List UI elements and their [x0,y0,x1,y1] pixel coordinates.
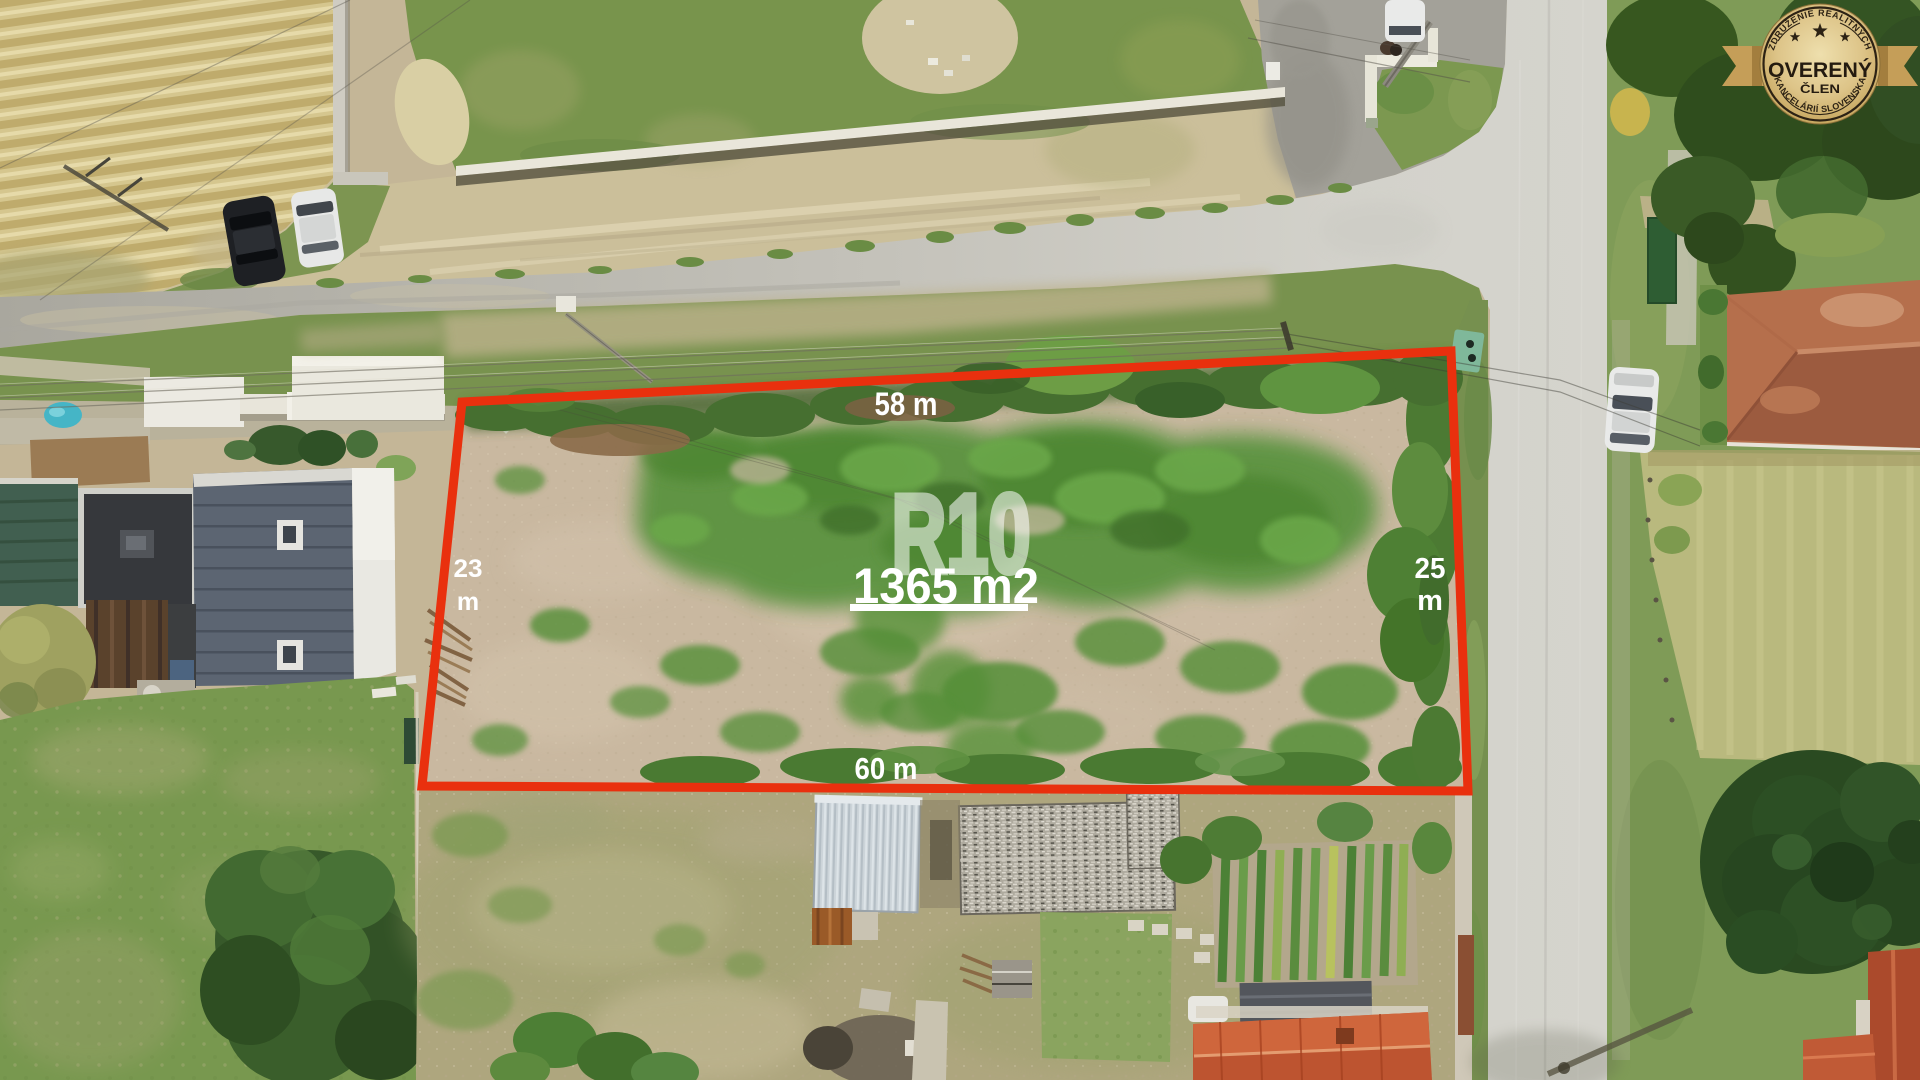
svg-text:23: 23 [454,555,483,583]
svg-text:ČLEN: ČLEN [1800,83,1840,96]
svg-text:25: 25 [1415,553,1446,585]
svg-text:m: m [1417,585,1443,617]
svg-text:m: m [457,588,479,616]
svg-text:58 m: 58 m [875,386,938,422]
svg-text:60 m: 60 m [855,751,918,786]
svg-text:OVERENÝ: OVERENÝ [1768,57,1872,82]
